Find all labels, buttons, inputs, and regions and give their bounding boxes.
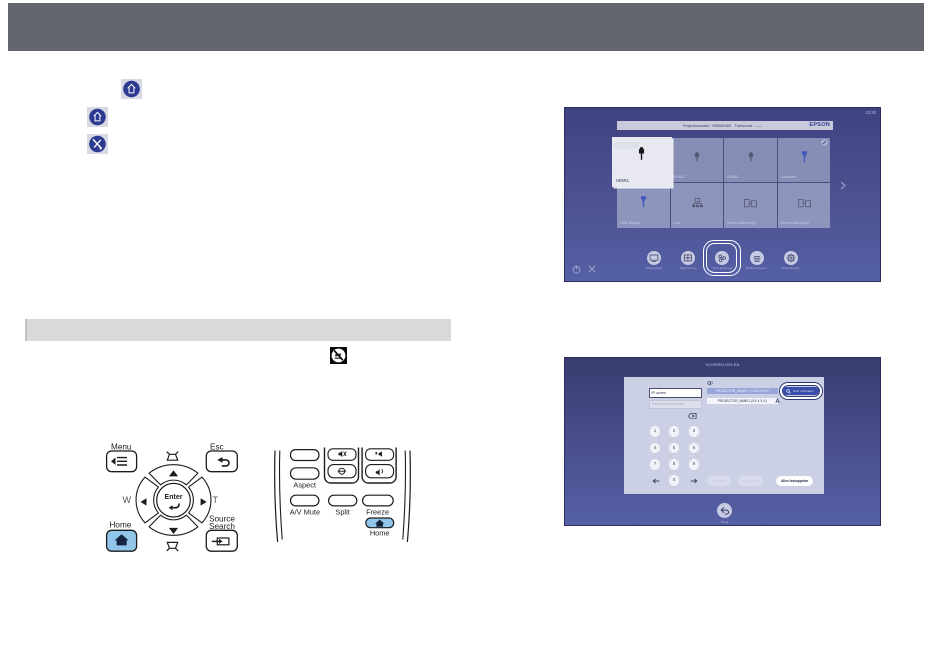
svg-text:Aspect: Aspect (293, 481, 316, 490)
svg-text:A/V Mute: A/V Mute (290, 508, 320, 517)
svg-text:Enter: Enter (165, 494, 183, 501)
svg-text:T: T (213, 495, 219, 505)
svg-text:Menu: Menu (111, 443, 132, 452)
svg-text:Esc: Esc (210, 443, 224, 452)
svg-text:Freeze: Freeze (366, 508, 389, 517)
svg-text:Split: Split (335, 508, 349, 517)
svg-text:W: W (123, 495, 132, 505)
svg-text:Home: Home (370, 529, 390, 538)
svg-text:Home: Home (110, 521, 132, 530)
